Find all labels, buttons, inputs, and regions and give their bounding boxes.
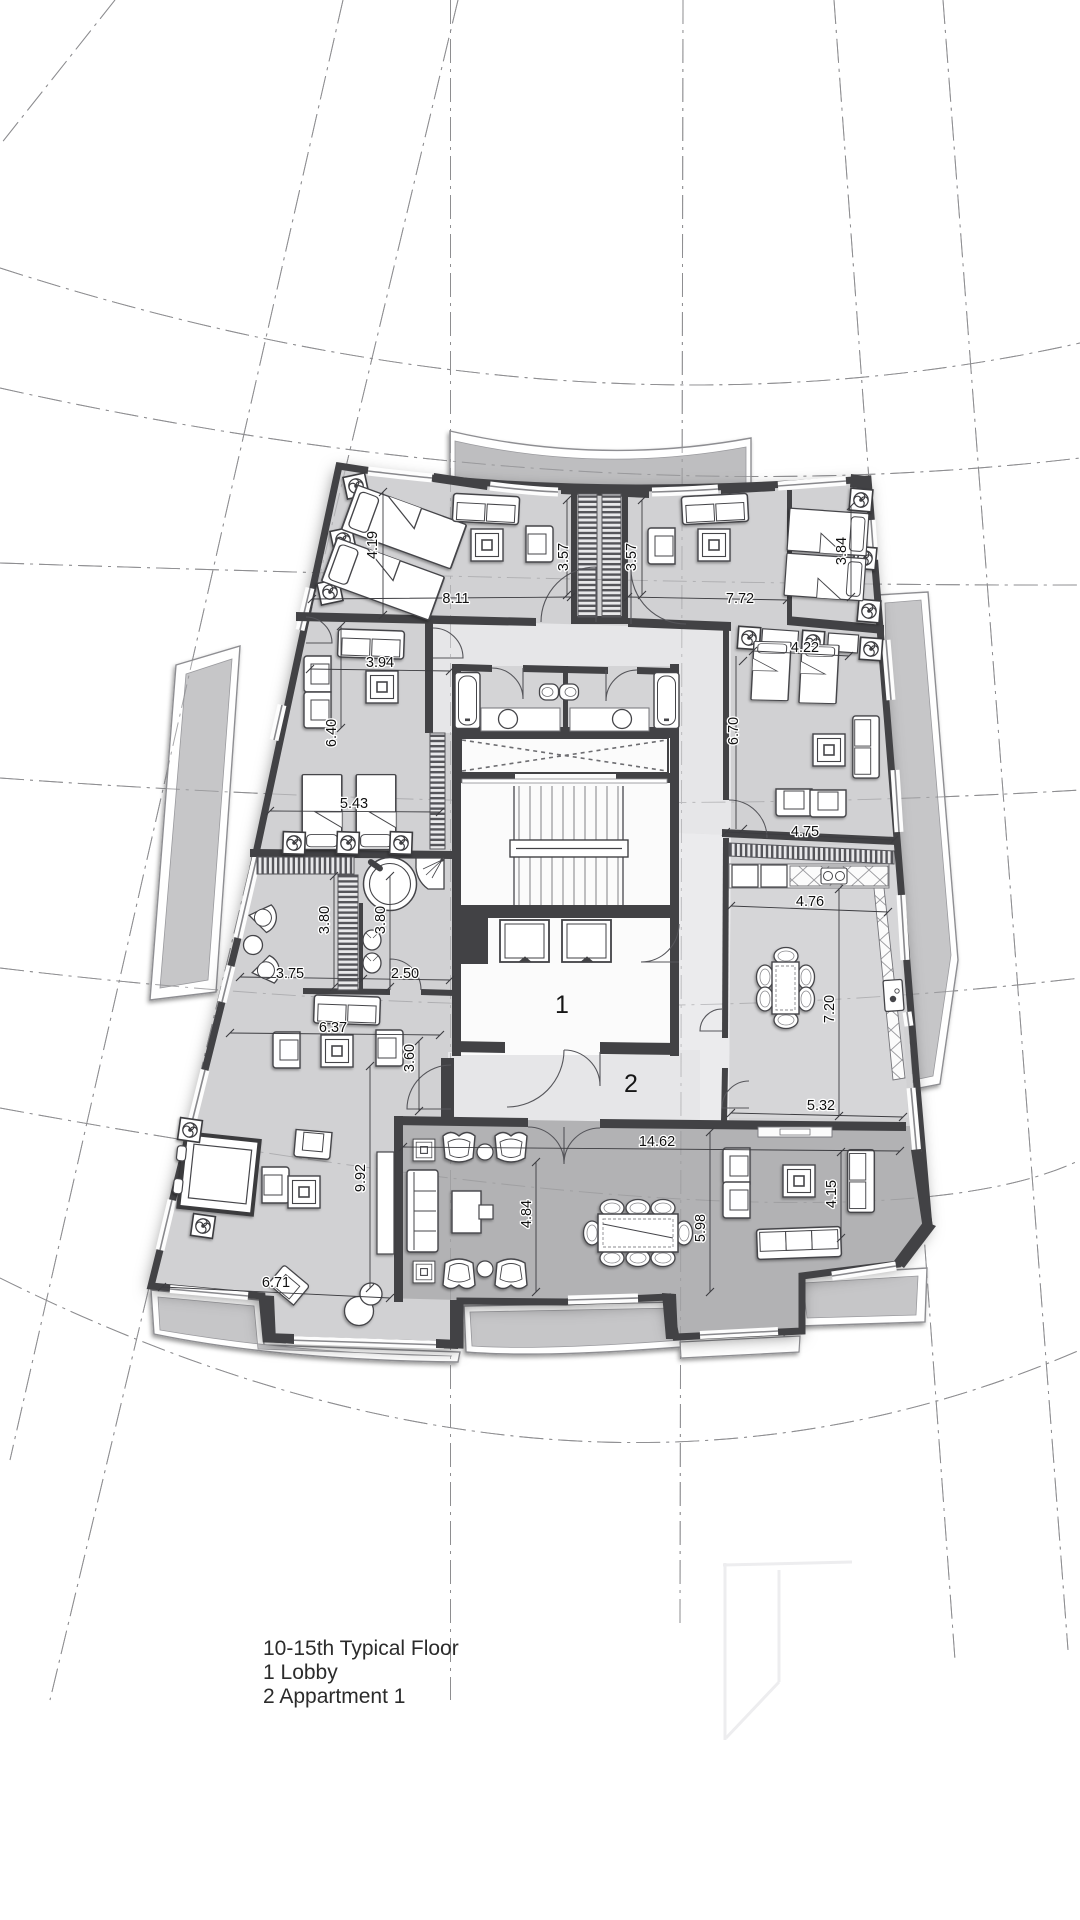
svg-text:4.84: 4.84 [519,1200,535,1228]
svg-text:3.80: 3.80 [373,906,389,934]
svg-text:6.40: 6.40 [324,719,340,747]
svg-text:3.94: 3.94 [366,655,394,671]
svg-text:1 Lobby: 1 Lobby [263,1661,338,1684]
svg-text:6.71: 6.71 [262,1275,290,1291]
svg-text:10-15th Typical Floor: 10-15th Typical Floor [263,1637,459,1660]
svg-text:3.57: 3.57 [624,543,640,571]
svg-text:3.84: 3.84 [834,537,850,565]
svg-text:3.60: 3.60 [402,1044,418,1072]
svg-text:7.72: 7.72 [726,591,754,607]
svg-text:4.22: 4.22 [791,640,819,656]
svg-text:6.37: 6.37 [319,1020,347,1036]
svg-text:2.50: 2.50 [391,966,419,982]
svg-text:6.70: 6.70 [726,717,742,745]
svg-text:4.15: 4.15 [824,1180,840,1208]
svg-text:4.75: 4.75 [791,824,819,840]
svg-text:9.92: 9.92 [353,1164,369,1192]
svg-text:5.43: 5.43 [340,796,368,812]
svg-text:4.76: 4.76 [796,894,824,910]
svg-text:3.80: 3.80 [317,906,333,934]
svg-text:7.20: 7.20 [822,995,838,1023]
svg-text:3.57: 3.57 [556,543,572,571]
svg-text:2: 2 [624,1070,638,1098]
svg-text:14.62: 14.62 [639,1134,675,1150]
svg-text:3.75: 3.75 [276,966,304,982]
svg-text:5.98: 5.98 [693,1214,709,1242]
svg-text:2 Appartment 1: 2 Appartment 1 [263,1685,405,1708]
svg-text:8.11: 8.11 [442,591,469,607]
svg-text:1: 1 [555,991,569,1019]
svg-text:4.19: 4.19 [365,531,381,559]
svg-text:5.32: 5.32 [807,1098,835,1114]
